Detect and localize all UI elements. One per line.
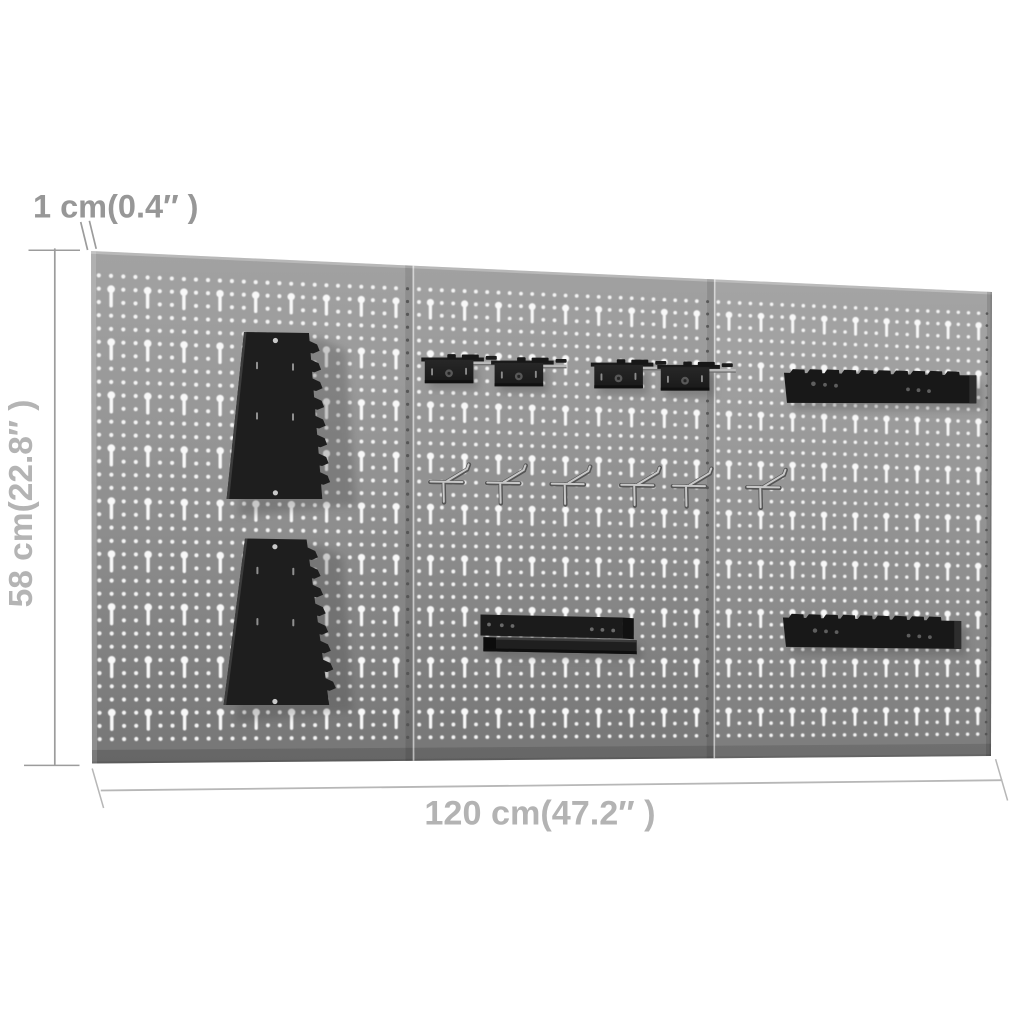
- svg-text:120 cm(47.2″ ): 120 cm(47.2″ ): [424, 795, 655, 833]
- svg-text:1 cm(0.4″ ): 1 cm(0.4″ ): [33, 189, 199, 225]
- svg-text:58 cm(22.8″ ): 58 cm(22.8″ ): [3, 400, 40, 608]
